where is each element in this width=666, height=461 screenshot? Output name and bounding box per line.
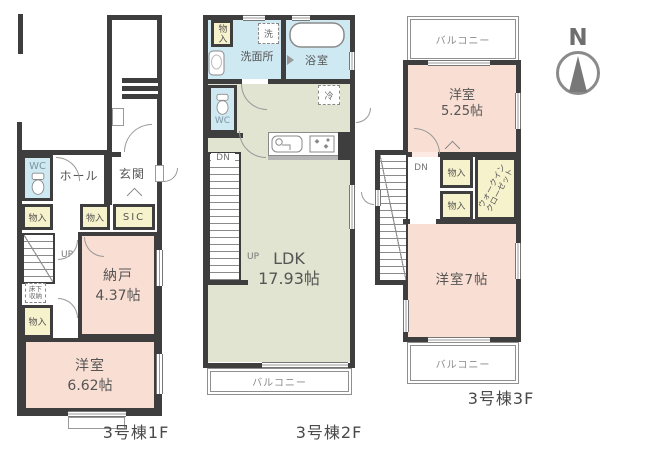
f3-storage-b: 物入	[440, 191, 473, 220]
compass-n-label: N	[562, 24, 594, 52]
north-arrow-icon	[569, 56, 587, 92]
f1-genkan-wall-stub	[107, 152, 121, 157]
f1-underfloor-storage: 床下収納	[25, 283, 46, 303]
f2-storage-label: 物入	[216, 24, 229, 44]
f3-window-top	[428, 60, 490, 66]
f3-stairs	[380, 155, 406, 280]
f3-bedroom-b-window-right	[515, 243, 521, 279]
f2-wc-room: WC	[208, 85, 237, 133]
f1-storage-c-label: 物入	[28, 315, 46, 328]
f2-toilet-icon	[214, 93, 231, 116]
f2-window-top-b	[292, 15, 310, 21]
f3-storage-a: 物入	[440, 157, 473, 188]
f1-bedroom-window-right	[156, 354, 163, 394]
f1-floor-label: 3号棟1F	[98, 424, 174, 442]
f2-kitchen-wall-return	[338, 132, 350, 160]
f2-bathtub-icon	[289, 22, 345, 48]
f2-bath-door-mark	[287, 55, 294, 65]
f3-balcony-top: バルコニー	[407, 16, 519, 62]
f3-bedroom-a-window	[515, 93, 521, 129]
f3-stair-door-arc	[361, 192, 374, 205]
f3-storage-b-label: 物入	[447, 199, 465, 212]
f3-bedroom-b-window-left	[403, 300, 409, 332]
f1-left-stub-wall	[18, 14, 23, 54]
f3-dn-label: DN	[409, 163, 433, 175]
f1-wc-label: WC	[29, 161, 46, 172]
f2-wc-label: WC	[215, 116, 230, 126]
f1-sic-label: SIC	[123, 212, 145, 223]
f1-entry-steps	[122, 78, 158, 99]
f1-toilet-icon	[29, 172, 47, 196]
f2-vanity-sink-icon	[208, 50, 225, 76]
f3-balcony-bottom: バルコニー	[407, 342, 519, 384]
f2-ldk-label: LDK 17.93帖	[233, 246, 345, 292]
f2-dn-label: DN	[211, 153, 235, 165]
f2-fridge-box: 冷	[318, 85, 340, 105]
f2-ldk-name: LDK	[273, 249, 305, 269]
f2-window-right-a	[349, 52, 355, 70]
floor-plan-canvas: 玄関 WC ホール 物入 物入 SIC UP 床下収納 物入 納戸 4.37帖 …	[0, 0, 666, 461]
f2-storage-closet: 物入	[211, 20, 233, 47]
f2-kitchen-counter	[268, 132, 340, 160]
f1-storage-left: 物入	[22, 305, 53, 338]
f1-nando-size-label: 4.37帖	[95, 285, 140, 305]
f2-window-top-a	[243, 15, 265, 21]
f2-service-door-arc	[356, 108, 371, 123]
f1-side-door-panel	[155, 165, 164, 182]
f3-wic-label: ウォークイン クローゼット	[477, 163, 516, 214]
f2-washer-box: 洗	[258, 23, 279, 44]
f3-storage-a-label: 物入	[447, 166, 465, 179]
f2-balcony-label: バルコニー	[252, 374, 307, 389]
f1-bedroom: 洋室 6.62帖	[22, 338, 158, 412]
f2-bath-label: 浴室	[297, 54, 337, 68]
f3-balcony-top-label: バルコニー	[436, 32, 491, 47]
f1-underfloor-label: 床下収納	[28, 286, 43, 301]
f2-washer-label: 洗	[264, 27, 273, 40]
f1-genkan-label: 玄関	[107, 166, 157, 182]
f1-room-size-label: 6.62帖	[67, 375, 112, 395]
f2-floor-label: 3号棟2F	[291, 424, 367, 442]
f1-storage-mid: 物入	[80, 204, 110, 230]
f3-walk-in-closet: ウォークイン クローゼット	[475, 157, 517, 220]
f3-bedroom-b-label: 洋室7帖	[408, 270, 516, 290]
f2-fridge-label: 冷	[324, 89, 333, 102]
f3-room-a-name: 洋室	[449, 88, 475, 104]
f3-floor-label: 3号棟3F	[463, 390, 539, 408]
f3-room-a-size: 5.25帖	[441, 104, 483, 120]
f1-nando-label: 納戸	[103, 265, 133, 285]
f1-sic-closet: SIC	[113, 204, 155, 230]
f1-storage-a-label: 物入	[28, 211, 46, 224]
f2-window-right-b	[349, 185, 355, 229]
f2-balcony: バルコニー	[207, 368, 352, 395]
f3-bedroom-a-label: 洋室 5.25帖	[408, 80, 516, 128]
f3-stair-window	[375, 190, 381, 206]
f2-wc-bottom-wall	[203, 133, 243, 138]
f1-wc-room: WC	[22, 155, 53, 201]
f1-left-ext-wall	[17, 122, 22, 152]
f1-nando-window	[156, 250, 163, 286]
f1-storage-b-label: 物入	[86, 211, 104, 224]
f3-balcony-bottom-label: バルコニー	[436, 356, 491, 371]
f1-stairs	[22, 233, 55, 284]
f1-storage-under-wc: 物入	[22, 204, 53, 230]
f2-washroom-label: 洗面所	[231, 50, 283, 64]
f2-ldk-size: 17.93帖	[258, 269, 320, 289]
f1-room-label: 洋室	[75, 355, 105, 375]
f1-side-door-arc	[164, 168, 178, 182]
f1-entry-step-block	[112, 108, 124, 126]
